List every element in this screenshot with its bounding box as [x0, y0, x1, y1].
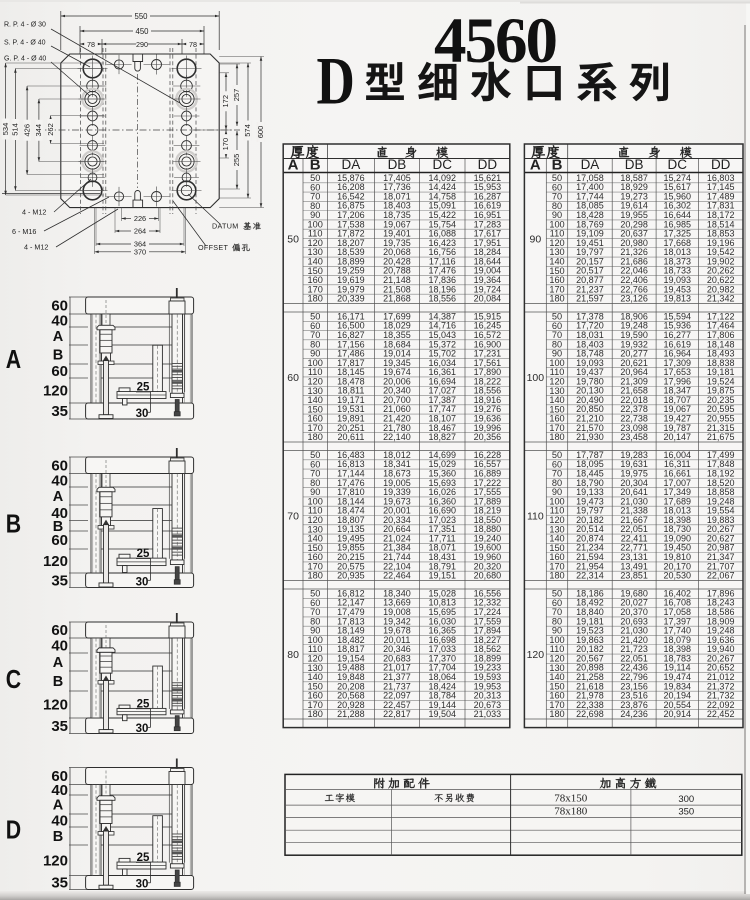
svg-text:80: 80 — [287, 649, 299, 661]
svg-text:180: 180 — [308, 571, 323, 581]
svg-text:300: 300 — [678, 794, 694, 805]
svg-text:255: 255 — [232, 154, 241, 167]
svg-text:120: 120 — [43, 553, 68, 570]
svg-text:DB: DB — [388, 157, 407, 172]
svg-text:6 - M16: 6 - M16 — [12, 227, 36, 236]
svg-text:70: 70 — [287, 510, 299, 522]
svg-text:120: 120 — [43, 852, 68, 869]
svg-text:78x180: 78x180 — [554, 805, 588, 817]
svg-text:90: 90 — [530, 233, 542, 245]
svg-text:35: 35 — [51, 572, 68, 589]
svg-text:344: 344 — [34, 124, 43, 137]
svg-text:21,675: 21,675 — [707, 432, 735, 442]
svg-text:4 - M12: 4 - M12 — [22, 208, 46, 217]
svg-text:264: 264 — [134, 227, 146, 236]
svg-text:20,914: 20,914 — [663, 709, 691, 719]
svg-text:60: 60 — [51, 532, 68, 549]
svg-text:B: B — [53, 348, 63, 364]
svg-text:DB: DB — [625, 157, 644, 172]
svg-text:180: 180 — [549, 709, 564, 719]
svg-text:21,342: 21,342 — [707, 294, 735, 304]
svg-text:18,827: 18,827 — [428, 432, 456, 442]
svg-text:25: 25 — [137, 548, 150, 560]
svg-text:A: A — [530, 157, 541, 174]
svg-text:262: 262 — [46, 123, 55, 136]
svg-text:550: 550 — [134, 12, 148, 21]
svg-text:B: B — [310, 157, 321, 174]
svg-text:180: 180 — [549, 294, 564, 304]
svg-text:35: 35 — [51, 403, 68, 420]
svg-text:4 - M12: 4 - M12 — [24, 243, 48, 252]
svg-text:370: 370 — [134, 247, 146, 256]
svg-text:426: 426 — [22, 124, 31, 137]
svg-text:G. P. 4 - Ø 40: G. P. 4 - Ø 40 — [4, 56, 46, 63]
svg-text:120: 120 — [43, 383, 68, 400]
svg-text:120: 120 — [527, 649, 545, 661]
svg-text:22,452: 22,452 — [707, 709, 735, 719]
svg-text:22,314: 22,314 — [576, 571, 604, 581]
svg-text:24,236: 24,236 — [620, 709, 648, 719]
svg-text:78: 78 — [189, 40, 197, 49]
svg-text:A: A — [288, 157, 299, 174]
svg-text:20,356: 20,356 — [474, 432, 502, 442]
svg-text:180: 180 — [308, 294, 323, 304]
svg-text:DC: DC — [668, 157, 688, 172]
svg-text:40: 40 — [51, 313, 68, 330]
svg-text:110: 110 — [527, 510, 544, 522]
svg-text:450: 450 — [135, 27, 149, 36]
svg-text:600: 600 — [256, 126, 265, 139]
svg-text:60: 60 — [51, 363, 68, 380]
svg-text:20,530: 20,530 — [663, 571, 691, 581]
svg-text:B: B — [53, 829, 63, 845]
svg-text:180: 180 — [549, 571, 564, 581]
svg-text:30: 30 — [136, 723, 149, 735]
svg-text:534: 534 — [1, 123, 10, 136]
svg-text:23,851: 23,851 — [620, 571, 648, 581]
svg-text:514: 514 — [11, 123, 20, 136]
svg-text:DA: DA — [581, 157, 600, 172]
svg-text:21,930: 21,930 — [576, 432, 604, 442]
svg-text:35: 35 — [51, 875, 68, 892]
svg-text:180: 180 — [549, 432, 564, 442]
svg-text:19,504: 19,504 — [428, 709, 456, 719]
svg-text:30: 30 — [136, 408, 149, 420]
svg-text:40: 40 — [51, 472, 68, 489]
svg-text:B: B — [552, 157, 563, 174]
svg-text:A: A — [6, 345, 21, 375]
svg-text:21,288: 21,288 — [337, 709, 365, 719]
svg-text:20,611: 20,611 — [337, 432, 364, 442]
svg-text:40: 40 — [51, 782, 68, 799]
svg-text:20,084: 20,084 — [474, 294, 502, 304]
svg-text:226: 226 — [134, 214, 146, 223]
svg-text:19,813: 19,813 — [663, 294, 691, 304]
svg-text:60: 60 — [51, 622, 68, 639]
svg-text:D: D — [317, 44, 355, 119]
svg-text:S. P. 4 - Ø 40: S. P. 4 - Ø 40 — [4, 40, 46, 47]
svg-text:40: 40 — [51, 638, 68, 655]
svg-text:574: 574 — [243, 124, 252, 137]
svg-text:DD: DD — [478, 157, 498, 172]
svg-text:A: A — [53, 798, 64, 814]
svg-text:21,868: 21,868 — [383, 294, 411, 304]
svg-text:350: 350 — [678, 807, 694, 818]
svg-text:180: 180 — [308, 709, 323, 719]
svg-text:22,698: 22,698 — [576, 709, 604, 719]
svg-text:R. P. 4 - Ø 30: R. P. 4 - Ø 30 — [4, 22, 46, 29]
svg-text:22,464: 22,464 — [383, 571, 411, 581]
svg-text:35: 35 — [51, 718, 68, 735]
svg-text:78: 78 — [87, 40, 95, 49]
svg-text:21,597: 21,597 — [576, 294, 604, 304]
svg-text:78x150: 78x150 — [554, 792, 588, 804]
svg-text:20,935: 20,935 — [337, 571, 365, 581]
svg-text:22,140: 22,140 — [383, 432, 411, 442]
svg-text:257: 257 — [232, 89, 241, 102]
svg-text:18,556: 18,556 — [428, 294, 456, 304]
svg-text:B: B — [53, 674, 63, 690]
svg-text:100: 100 — [527, 372, 545, 384]
svg-text:30: 30 — [136, 577, 149, 589]
svg-text:DD: DD — [711, 157, 731, 172]
svg-text:23,126: 23,126 — [620, 294, 648, 304]
svg-text:OFFSET: OFFSET — [198, 243, 228, 252]
svg-text:23,458: 23,458 — [620, 432, 648, 442]
svg-text:DATUM: DATUM — [212, 222, 239, 231]
svg-text:DC: DC — [433, 157, 453, 172]
svg-text:50: 50 — [287, 233, 299, 245]
svg-text:30: 30 — [136, 879, 149, 891]
svg-text:A: A — [53, 329, 64, 345]
svg-text:120: 120 — [43, 697, 68, 714]
svg-text:19,151: 19,151 — [428, 571, 456, 581]
svg-text:22,067: 22,067 — [707, 571, 735, 581]
svg-text:290: 290 — [136, 40, 148, 49]
svg-text:170: 170 — [221, 138, 230, 151]
svg-text:20,147: 20,147 — [663, 432, 691, 442]
svg-text:B: B — [6, 509, 21, 539]
svg-text:60: 60 — [287, 372, 299, 384]
svg-text:20,680: 20,680 — [474, 571, 502, 581]
svg-text:A: A — [53, 655, 64, 671]
svg-text:DA: DA — [342, 157, 361, 172]
svg-text:40: 40 — [51, 813, 68, 830]
svg-text:180: 180 — [308, 432, 323, 442]
svg-text:172: 172 — [221, 95, 230, 108]
svg-text:21,033: 21,033 — [474, 709, 502, 719]
svg-text:22,817: 22,817 — [383, 709, 411, 719]
svg-text:D: D — [6, 816, 21, 846]
svg-text:20,339: 20,339 — [337, 294, 365, 304]
svg-text:A: A — [53, 489, 64, 505]
svg-text:C: C — [6, 665, 21, 695]
